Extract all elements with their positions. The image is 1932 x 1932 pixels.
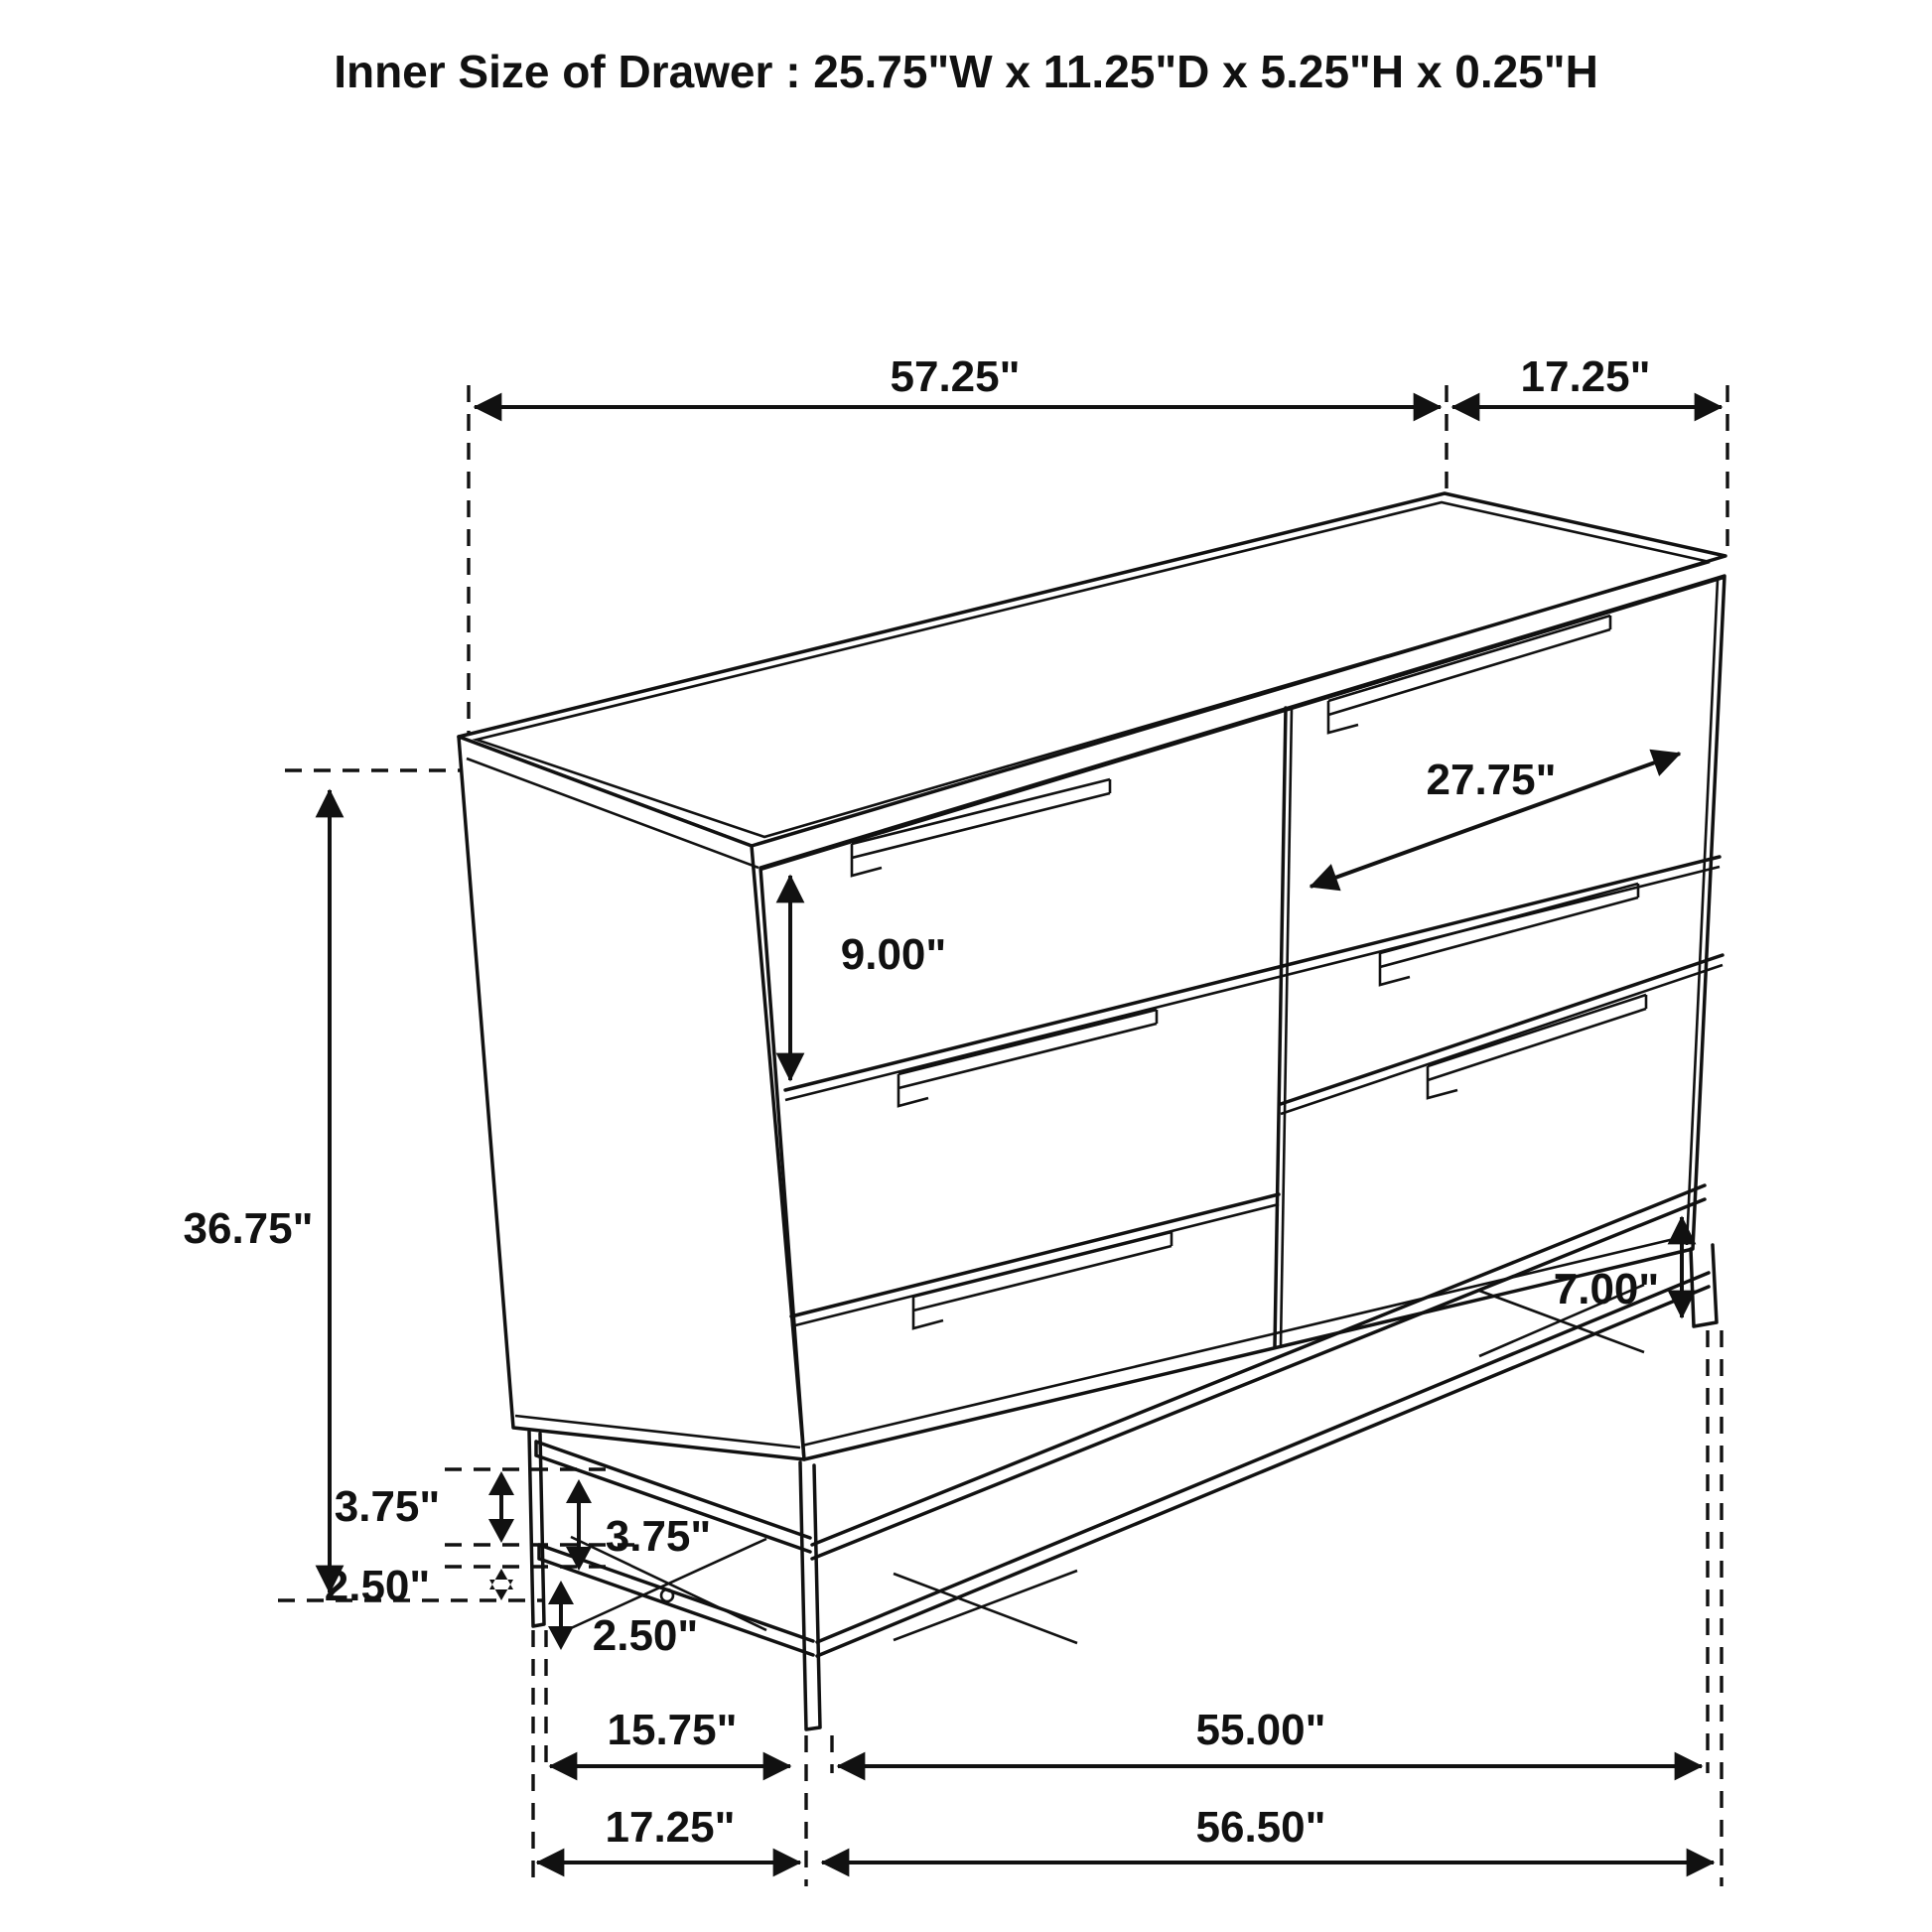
label-rail-375-inner: 3.75" bbox=[606, 1512, 712, 1561]
label-rail-250-outer: 2.50" bbox=[325, 1562, 431, 1610]
diagram-title: Inner Size of Drawer : 25.75"W x 11.25"D… bbox=[334, 46, 1598, 97]
front-right-leg bbox=[1691, 1245, 1717, 1326]
label-overall-height: 36.75" bbox=[184, 1204, 314, 1253]
label-base-width-outer: 56.50" bbox=[1196, 1803, 1326, 1852]
label-cabinet-depth-top: 17.25" bbox=[1521, 352, 1651, 401]
label-base-depth-outer: 17.25" bbox=[606, 1803, 736, 1852]
label-base-clearance-right: 7.00" bbox=[1554, 1265, 1660, 1313]
dresser-side-panel bbox=[459, 737, 804, 1459]
dimension-diagram-page: Inner Size of Drawer : 25.75"W x 11.25"D… bbox=[0, 0, 1932, 1932]
label-base-depth-inner: 15.75" bbox=[608, 1706, 738, 1754]
label-base-width-inner: 55.00" bbox=[1196, 1706, 1326, 1754]
dresser-dimension-diagram: Inner Size of Drawer : 25.75"W x 11.25"D… bbox=[0, 0, 1932, 1932]
label-rail-375-outer: 3.75" bbox=[335, 1482, 441, 1531]
label-rail-250-inner: 2.50" bbox=[593, 1611, 699, 1660]
front-left-cross-braces bbox=[894, 1571, 1077, 1643]
front-left-leg bbox=[800, 1462, 820, 1729]
label-top-drawer-height: 9.00" bbox=[841, 930, 947, 979]
back-left-leg bbox=[529, 1432, 544, 1626]
label-drawer-diagonal: 27.75" bbox=[1427, 756, 1557, 804]
arrow-rail-250-outer-heads bbox=[489, 1569, 513, 1600]
label-cabinet-width-top: 57.25" bbox=[891, 352, 1021, 401]
